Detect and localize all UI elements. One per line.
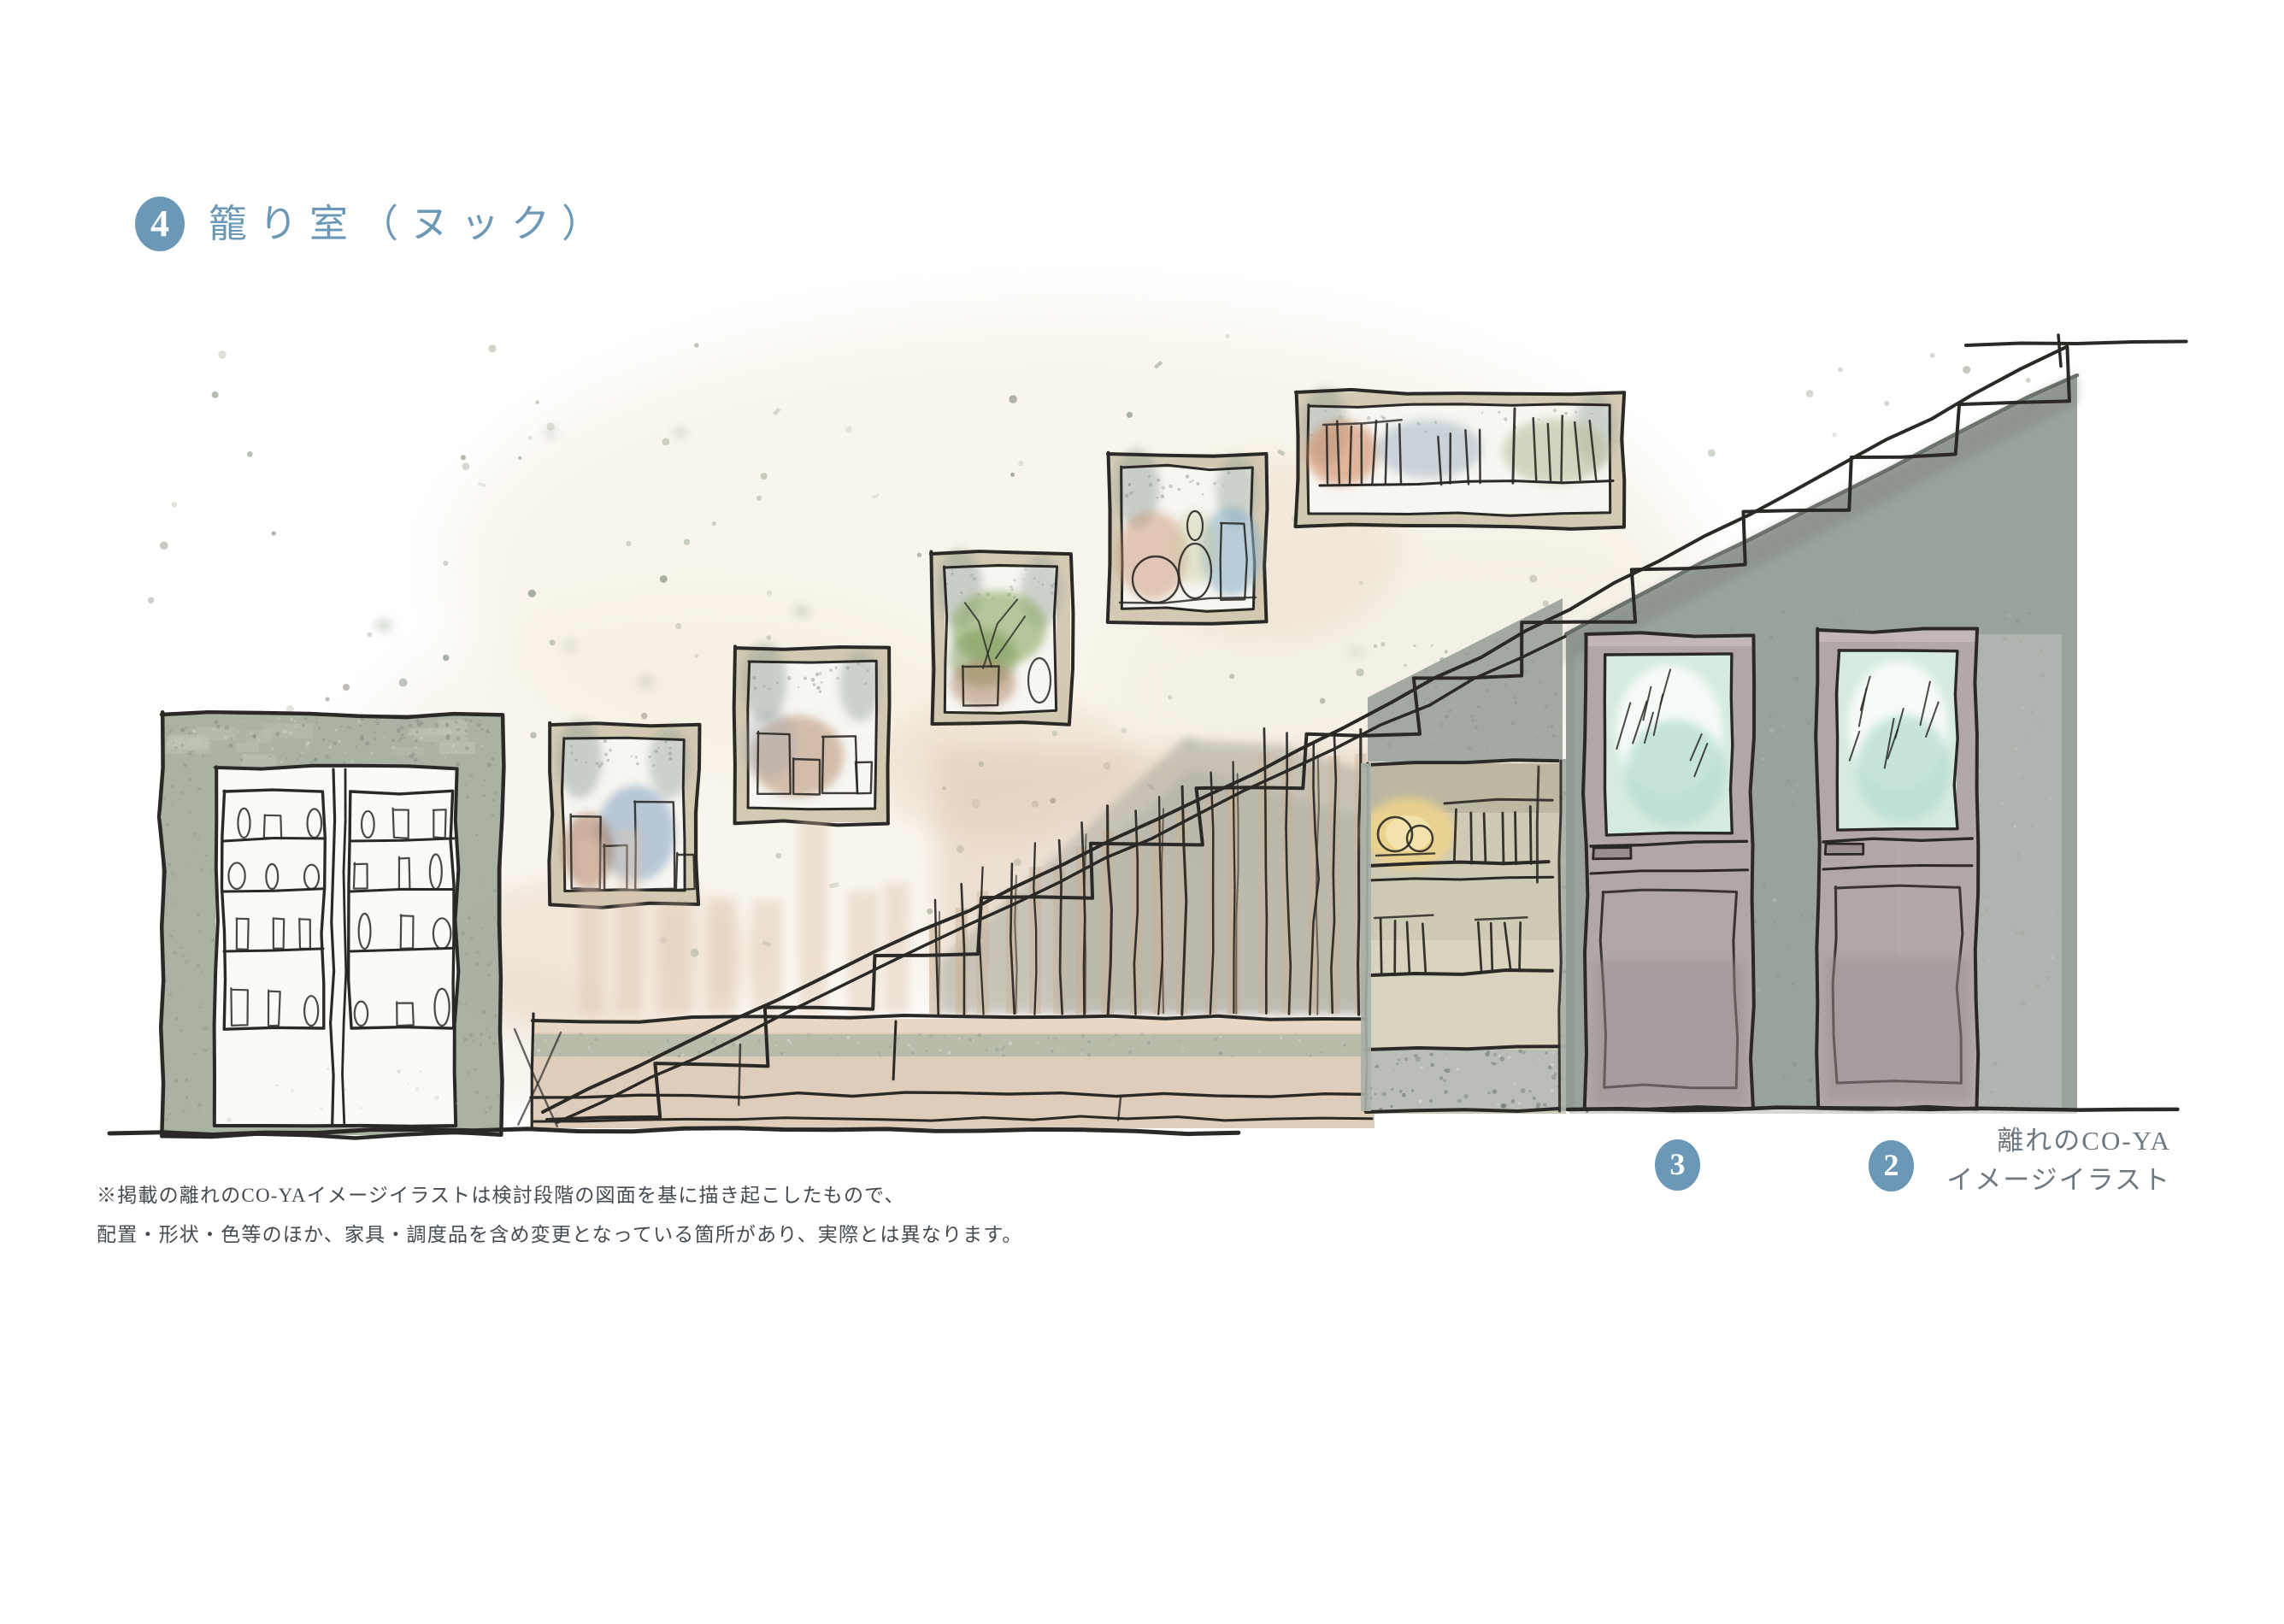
illustration-caption: 離れのCO-YA イメージイラスト: [1821, 1121, 2171, 1200]
page-title: 籠り室（ヌック）: [209, 205, 612, 244]
section-header: 4 籠り室（ヌック）: [135, 197, 612, 251]
section-number-badge: 4: [135, 197, 185, 251]
caption-line-2: イメージイラスト: [1821, 1161, 2171, 1200]
caption-line-1: 離れのCO-YA: [1821, 1121, 2171, 1161]
door-marker-3-badge: 3: [1655, 1139, 1700, 1191]
disclaimer-note: ※掲載の離れのCO-YAイメージイラストは検討段階の図面を基に描き起こしたもので…: [97, 1176, 1022, 1255]
nook-bench: [515, 1014, 1375, 1128]
page: 4 籠り室（ヌック） 3 2 離れのCO-YA イメージイラスト ※掲載の離れの…: [0, 0, 2284, 1624]
display-cabinet: [159, 712, 503, 1138]
disclaimer-line-1: ※掲載の離れのCO-YAイメージイラストは検討段階の図面を基に描き起こしたもので…: [97, 1176, 1022, 1215]
disclaimer-line-2: 配置・形状・色等のほか、家具・調度品を含め変更となっている箇所があり、実際とは異…: [97, 1215, 1022, 1255]
